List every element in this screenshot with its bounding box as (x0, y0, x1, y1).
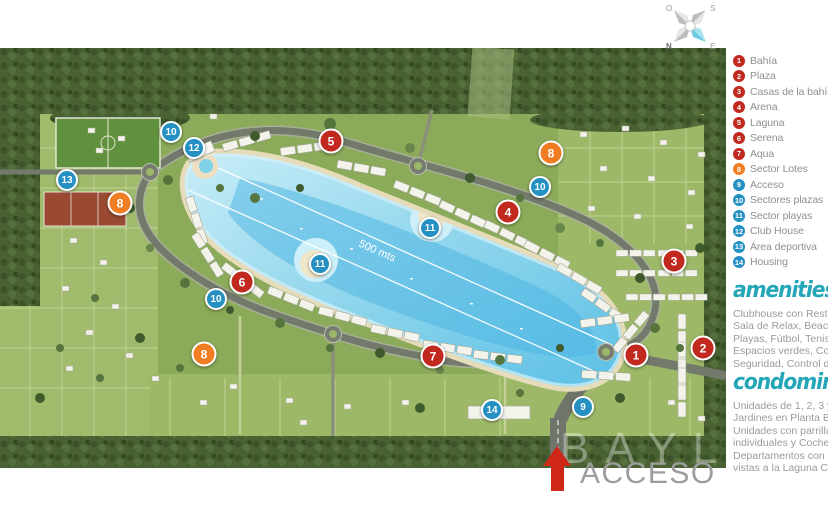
legend-item-8: 8Sector Lotes (733, 162, 828, 178)
text-line: Unidades con parrillas (733, 425, 828, 437)
text-line: individuales y Cocheras. (733, 437, 828, 449)
legend-item-1: 1Bahía (733, 53, 828, 69)
legend-marker-10: 10 (733, 194, 745, 206)
amenities-text: Clubhouse con Restaurant,Sala de Relax, … (733, 308, 828, 370)
legend-marker-7: 7 (733, 148, 745, 160)
compass-label-n: N (666, 42, 672, 51)
text-line: Seguridad, Control de Acceso. (733, 358, 828, 370)
text-line: Espacios verdes, Cocheras, (733, 345, 828, 357)
legend-marker-12: 12 (733, 225, 745, 237)
legend-marker-2: 2 (733, 70, 745, 82)
legend-item-13: 13Área deportiva (733, 239, 828, 255)
map-marker-1: 1 (624, 343, 649, 368)
acceso-arrow-icon (543, 446, 571, 491)
legend-marker-14: 14 (733, 256, 745, 268)
legend-marker-3: 3 (733, 86, 745, 98)
map-marker-11: 11 (309, 253, 331, 275)
legend-label: Laguna (750, 117, 784, 129)
text-line: Unidades de 1, 2, 3 y 4 ambientes. (733, 400, 828, 412)
legend-item-6: 6Serena (733, 131, 828, 147)
map-marker-4: 4 (496, 200, 521, 225)
legend-marker-1: 1 (733, 55, 745, 67)
map-marker-9: 9 (572, 396, 594, 418)
legend-item-12: 12Club House (733, 224, 828, 240)
map-marker-3: 3 (662, 249, 687, 274)
map-marker-8: 8 (108, 191, 133, 216)
map-marker-6: 6 (230, 270, 255, 295)
legend-label: Plaza (750, 70, 776, 82)
legend-label: Housing (750, 256, 788, 268)
text-line: vistas a la Laguna Central. (733, 462, 828, 474)
compass-rose: O S N E (660, 2, 724, 54)
amenities-section: amenities Clubhouse con Restaurant,Sala … (733, 278, 828, 370)
legend-label: Casas de la bahía (750, 86, 828, 98)
text-line: Jardines en Planta Baja. (733, 412, 828, 424)
sports-field (56, 118, 160, 168)
legend-label: Sector Lotes (750, 163, 808, 175)
condominios-section: condominios Unidades de 1, 2, 3 y 4 ambi… (733, 370, 828, 474)
legend-label: Arena (750, 101, 778, 113)
legend-item-10: 10Sectores plazas (733, 193, 828, 209)
site-map: 500 mts (0, 48, 726, 468)
legend-marker-4: 4 (733, 101, 745, 113)
legend-marker-11: 11 (733, 210, 745, 222)
legend-item-9: 9Acceso (733, 177, 828, 193)
legend-label: Acceso (750, 179, 784, 191)
map-marker-8: 8 (192, 342, 217, 367)
legend-marker-13: 13 (733, 241, 745, 253)
compass-star (674, 10, 706, 42)
condominios-title: condominios (733, 370, 828, 395)
map-marker-8: 8 (539, 141, 564, 166)
map-marker-10: 10 (529, 176, 551, 198)
map-marker-14: 14 (481, 399, 503, 421)
legend-label: Club House (750, 225, 804, 237)
legend-label: Serena (750, 132, 783, 144)
legend-item-14: 14Housing (733, 255, 828, 271)
acceso-label: ACCESO (580, 457, 716, 491)
map-marker-5: 5 (319, 129, 344, 154)
text-line: Clubhouse con Restaurant, (733, 308, 828, 320)
map-marker-12: 12 (183, 137, 205, 159)
text-line: Playas, Fútbol, Tenis, Voley, (733, 333, 828, 345)
legend-label: Sector playas (750, 210, 812, 222)
legend-marker-8: 8 (733, 163, 745, 175)
compass-label-s: S (710, 4, 715, 13)
map-marker-10: 10 (160, 121, 182, 143)
lots-bottom (150, 374, 570, 436)
amenities-title: amenities (733, 278, 828, 303)
legend-item-5: 5Laguna (733, 115, 828, 131)
map-marker-13: 13 (56, 169, 78, 191)
legend-item-4: 4Arena (733, 100, 828, 116)
legend-label: Bahía (750, 55, 777, 67)
legend-item-7: 7Aqua (733, 146, 828, 162)
legend-label: Aqua (750, 148, 774, 160)
legend-marker-6: 6 (733, 132, 745, 144)
legend-marker-9: 9 (733, 179, 745, 191)
legend-label: Sectores plazas (750, 194, 823, 206)
map-marker-7: 7 (421, 344, 446, 369)
condominios-text: Unidades de 1, 2, 3 y 4 ambientes.Jardin… (733, 400, 828, 474)
legend: 1Bahía2Plaza3Casas de la bahía4Arena5Lag… (733, 53, 828, 270)
site-plan-page: 500 mts (0, 0, 828, 508)
legend-marker-5: 5 (733, 117, 745, 129)
compass-label-o: O (666, 4, 672, 13)
legend-label: Área deportiva (750, 241, 817, 253)
legend-item-11: 11Sector playas (733, 208, 828, 224)
map-marker-11: 11 (419, 217, 441, 239)
text-line: Sala de Relax, Beach Bar, (733, 320, 828, 332)
legend-item-2: 2Plaza (733, 69, 828, 85)
map-marker-2: 2 (691, 336, 716, 361)
compass-label-e: E (710, 42, 715, 51)
map-marker-10: 10 (205, 288, 227, 310)
text-line: Departamentos con increíbles (733, 450, 828, 462)
legend-item-3: 3Casas de la bahía (733, 84, 828, 100)
